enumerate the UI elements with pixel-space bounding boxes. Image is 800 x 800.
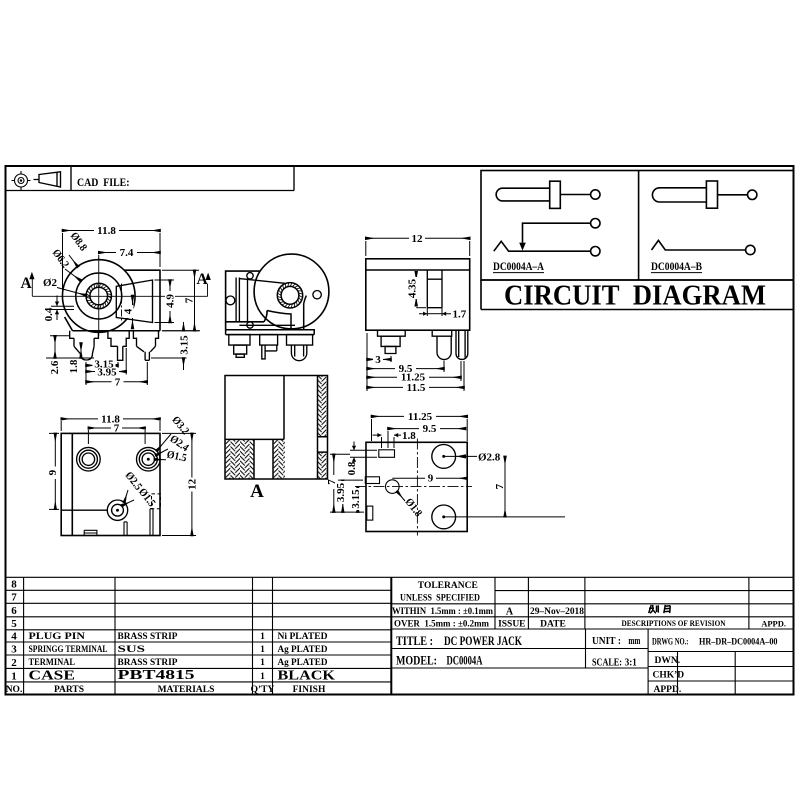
svg-text:11.25: 11.25 bbox=[408, 411, 433, 423]
svg-text:TERMINAL: TERMINAL bbox=[29, 658, 76, 668]
svg-text:DC0004A–A: DC0004A–A bbox=[493, 261, 545, 273]
svg-text:4: 4 bbox=[11, 631, 17, 643]
svg-text:Ag PLATED: Ag PLATED bbox=[278, 658, 328, 668]
svg-text:1: 1 bbox=[260, 645, 265, 655]
svg-text:DATE: DATE bbox=[540, 619, 566, 629]
svg-text:3: 3 bbox=[375, 354, 381, 366]
svg-text:TOLERANCE: TOLERANCE bbox=[418, 581, 478, 591]
svg-text:4.9: 4.9 bbox=[165, 294, 177, 308]
svg-text:1: 1 bbox=[260, 672, 265, 682]
svg-text:0.8: 0.8 bbox=[346, 461, 358, 475]
svg-text:DRWG NO.:: DRWG NO.: bbox=[652, 638, 689, 648]
svg-text:MODEL:: MODEL: bbox=[396, 654, 437, 668]
svg-text:A: A bbox=[506, 607, 514, 618]
svg-text:Ø2: Ø2 bbox=[43, 277, 58, 289]
svg-text:Q’TY: Q’TY bbox=[251, 685, 275, 695]
svg-text:Ni PLATED: Ni PLATED bbox=[278, 632, 328, 642]
svg-text:CAD FILE:: CAD FILE: bbox=[77, 175, 130, 189]
svg-text:5: 5 bbox=[11, 618, 17, 630]
svg-text:APPD.: APPD. bbox=[654, 685, 682, 695]
svg-text:HR–DR–DC0004A–00: HR–DR–DC0004A–00 bbox=[699, 638, 778, 648]
svg-text:PLUG PIN: PLUG PIN bbox=[29, 632, 86, 642]
svg-text:11.5: 11.5 bbox=[407, 382, 426, 394]
svg-text:BRASS STRIP: BRASS STRIP bbox=[118, 658, 178, 668]
svg-text:PBT4815: PBT4815 bbox=[118, 668, 195, 683]
svg-text:3:1: 3:1 bbox=[625, 658, 637, 669]
svg-text:CIRCUIT DIAGRAM: CIRCUIT DIAGRAM bbox=[504, 281, 766, 312]
svg-text:9.5: 9.5 bbox=[423, 423, 437, 435]
svg-text:2.6: 2.6 bbox=[49, 360, 61, 374]
svg-text:1: 1 bbox=[11, 670, 17, 682]
svg-text:4: 4 bbox=[123, 308, 135, 314]
svg-text:7: 7 bbox=[184, 297, 196, 303]
svg-text:PARTS: PARTS bbox=[54, 685, 84, 695]
svg-text:CHK’D: CHK’D bbox=[653, 671, 685, 681]
svg-text:12: 12 bbox=[186, 478, 198, 490]
svg-text:SUS: SUS bbox=[118, 645, 146, 655]
svg-text:NO.: NO. bbox=[6, 685, 23, 695]
svg-text:0.4: 0.4 bbox=[43, 307, 55, 321]
svg-text:12: 12 bbox=[412, 233, 424, 245]
svg-text:2: 2 bbox=[11, 657, 17, 669]
svg-text:UNLESS SPECIFIED: UNLESS SPECIFIED bbox=[400, 594, 480, 604]
svg-text:9: 9 bbox=[428, 473, 434, 485]
svg-text:29–Nov–2018: 29–Nov–2018 bbox=[530, 607, 584, 617]
svg-text:11.8: 11.8 bbox=[97, 225, 116, 237]
svg-text:1.7: 1.7 bbox=[453, 309, 467, 321]
svg-text:1.8: 1.8 bbox=[402, 430, 416, 442]
svg-text:7: 7 bbox=[115, 376, 121, 388]
svg-text:1: 1 bbox=[260, 658, 265, 668]
svg-text:A: A bbox=[250, 481, 264, 502]
svg-text:9: 9 bbox=[47, 469, 59, 475]
svg-text:DC0004A–B: DC0004A–B bbox=[651, 261, 702, 273]
svg-text:DC POWER JACK: DC POWER JACK bbox=[444, 634, 522, 648]
svg-text:6: 6 bbox=[11, 605, 17, 617]
svg-text:3.15: 3.15 bbox=[179, 335, 191, 355]
svg-text:8: 8 bbox=[11, 579, 17, 591]
svg-text:7.4: 7.4 bbox=[120, 247, 134, 259]
svg-text:DESCRIPTIONS OF REVISION: DESCRIPTIONS OF REVISION bbox=[622, 618, 727, 628]
svg-text:APPD.: APPD. bbox=[761, 618, 786, 628]
svg-text:MATERIALS: MATERIALS bbox=[158, 685, 215, 695]
svg-text:BLACK: BLACK bbox=[278, 668, 336, 683]
svg-text:Ø2.8: Ø2.8 bbox=[478, 451, 501, 463]
svg-text:3: 3 bbox=[11, 644, 17, 656]
svg-text:7: 7 bbox=[11, 592, 17, 604]
svg-text:OVER 1.5mm : ±0.2mm: OVER 1.5mm : ±0.2mm bbox=[394, 619, 489, 629]
svg-text:DWN.: DWN. bbox=[655, 656, 681, 666]
svg-text:7: 7 bbox=[494, 483, 506, 489]
svg-text:SPRINGG TERMINAL: SPRINGG TERMINAL bbox=[29, 645, 108, 655]
svg-text:CASE: CASE bbox=[29, 668, 76, 683]
svg-text:UNIT :: UNIT : bbox=[592, 636, 621, 647]
svg-text:TITLE :: TITLE : bbox=[396, 634, 433, 648]
svg-text:ISSUE: ISSUE bbox=[498, 619, 525, 629]
svg-text:3.95: 3.95 bbox=[335, 482, 347, 502]
svg-text:mm: mm bbox=[628, 636, 640, 647]
svg-text:1.8: 1.8 bbox=[68, 359, 80, 373]
svg-text:WITHIN 1.5mm : ±0.1mm: WITHIN 1.5mm : ±0.1mm bbox=[392, 607, 493, 617]
svg-text:3.15: 3.15 bbox=[350, 489, 362, 509]
svg-text:BRASS STRIP: BRASS STRIP bbox=[118, 632, 178, 642]
svg-text:Ag PLATED: Ag PLATED bbox=[278, 645, 328, 655]
svg-text:DC0004A: DC0004A bbox=[447, 654, 483, 668]
svg-text:FINISH: FINISH bbox=[293, 685, 326, 695]
svg-text:1: 1 bbox=[260, 632, 265, 642]
svg-text:SCALE:: SCALE: bbox=[592, 658, 622, 669]
svg-text:4.35: 4.35 bbox=[406, 278, 418, 298]
